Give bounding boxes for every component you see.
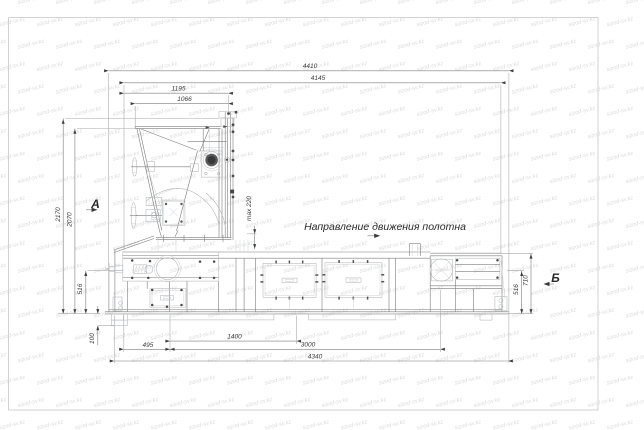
- svg-text:Направление движения полотна: Направление движения полотна: [304, 221, 466, 233]
- svg-text:2070: 2070: [66, 212, 73, 228]
- svg-text:4410: 4410: [303, 63, 318, 70]
- svg-text:495: 495: [142, 342, 153, 349]
- svg-text:3000: 3000: [301, 341, 316, 348]
- svg-text:4145: 4145: [311, 75, 326, 82]
- svg-text:2170: 2170: [55, 207, 62, 223]
- svg-text:max 220: max 220: [246, 196, 253, 221]
- svg-text:Б: Б: [551, 271, 560, 285]
- svg-text:516: 516: [77, 283, 84, 294]
- svg-text:1195: 1195: [172, 86, 186, 93]
- svg-text:710: 710: [522, 275, 529, 286]
- svg-text:4340: 4340: [308, 354, 323, 361]
- svg-text:1400: 1400: [227, 334, 242, 341]
- svg-text:516: 516: [513, 284, 520, 295]
- svg-text:100: 100: [89, 333, 96, 344]
- svg-text:1066: 1066: [177, 96, 192, 103]
